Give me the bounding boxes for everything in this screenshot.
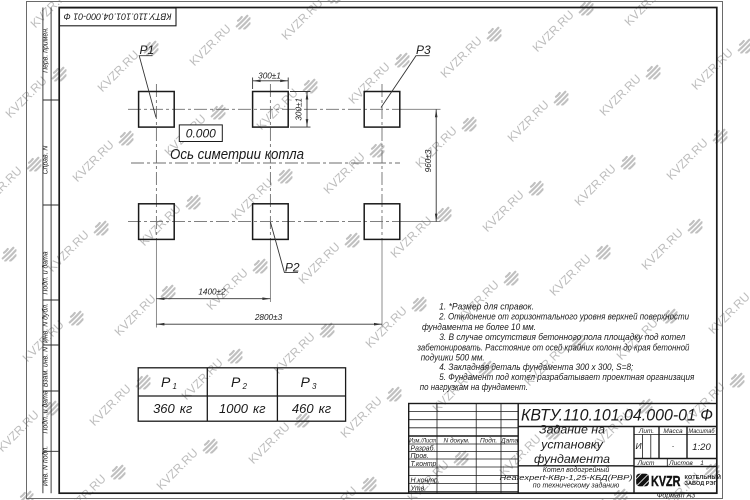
svg-text:1:20: 1:20 — [692, 442, 711, 453]
svg-text:И: И — [635, 441, 642, 451]
svg-text:-: - — [672, 443, 675, 450]
svg-text:фундамента не более 10 мм.: фундамента не более 10 мм. — [422, 322, 536, 332]
svg-text:4. Закладная деталь фундамента: 4. Закладная деталь фундамента 300 x 300… — [439, 362, 633, 372]
svg-text:360кг: 360кг — [153, 401, 193, 416]
svg-text:KVZR.RU: KVZR.RU — [0, 164, 25, 211]
svg-text:1000кг: 1000кг — [219, 401, 266, 416]
svg-text:Инв. N дубл.: Инв. N дубл. — [41, 303, 49, 343]
svg-text:Формат А3: Формат А3 — [657, 493, 695, 500]
svg-text:Масса: Масса — [663, 428, 683, 435]
svg-text:KVZR.RU: KVZR.RU — [706, 290, 750, 337]
svg-text:KVZR.RU: KVZR.RU — [95, 48, 142, 95]
svg-text:Ось симетрии котла: Ось симетрии котла — [170, 147, 304, 163]
svg-text:300±1: 300±1 — [295, 98, 304, 121]
svg-text:установку: установку — [540, 438, 603, 452]
svg-text:фундамента: фундамента — [534, 452, 610, 466]
svg-text:P2: P2 — [285, 261, 300, 275]
svg-text:KVZR.RU: KVZR.RU — [137, 202, 184, 249]
svg-text:KVZR.RU: KVZR.RU — [45, 228, 92, 275]
svg-text:Инв. N подл.: Инв. N подл. — [41, 446, 49, 486]
svg-text:N докум.: N докум. — [443, 437, 469, 445]
svg-text:KVZR.RU: KVZR.RU — [296, 240, 343, 287]
svg-text:KVZR.RU: KVZR.RU — [87, 382, 134, 429]
svg-text:Листов: Листов — [668, 460, 693, 467]
svg-text:Подп.: Подп. — [480, 437, 497, 445]
svg-text:KVZR.RU: KVZR.RU — [62, 472, 109, 500]
svg-text:KVZR: KVZR — [651, 474, 681, 490]
svg-text:1: 1 — [700, 460, 704, 467]
svg-text:KVZR.RU: KVZR.RU — [346, 60, 393, 107]
svg-text:KVZR.RU: KVZR.RU — [388, 214, 435, 261]
svg-text:KVZR.RU: KVZR.RU — [0, 408, 42, 455]
svg-text:KVZR.RU: KVZR.RU — [505, 98, 552, 145]
svg-text:P 1: P 1 — [161, 374, 177, 391]
svg-text:по техническому заданию: по техническому заданию — [533, 482, 620, 490]
svg-text:1400±2: 1400±2 — [198, 288, 226, 297]
svg-text:Котел водогрейный: Котел водогрейный — [543, 466, 610, 474]
svg-text:Лит.: Лит. — [638, 428, 654, 435]
svg-text:P 2: P 2 — [231, 374, 248, 391]
svg-text:5. Фундамент под котел разраба: 5. Фундамент под котел разрабатывает про… — [439, 372, 694, 382]
svg-text:KVZR.RU: KVZR.RU — [530, 8, 577, 55]
svg-text:Взам. инв. N: Взам. инв. N — [42, 347, 49, 387]
svg-text:Пров.: Пров. — [411, 453, 429, 460]
svg-text:2800±3: 2800±3 — [254, 313, 283, 322]
svg-text:1. *Размер для справок.: 1. *Размер для справок. — [439, 302, 534, 312]
svg-text:Задание на: Задание на — [539, 423, 605, 437]
svg-text:Утв.: Утв. — [410, 485, 427, 492]
svg-text:Т.контр.: Т.контр. — [411, 461, 439, 468]
svg-text:KVZR.RU: KVZR.RU — [438, 34, 485, 81]
svg-text:KVZR.RU: KVZR.RU — [70, 138, 117, 185]
svg-text:KVZR.RU: KVZR.RU — [564, 496, 611, 500]
svg-text:Лист: Лист — [637, 460, 655, 467]
svg-text:по нагрузкам на фундамент.: по нагрузкам на фундамент. — [420, 382, 528, 392]
svg-text:Подп. и дата: Подп. и дата — [41, 251, 49, 294]
svg-text:P3: P3 — [416, 43, 431, 57]
svg-text:KVZR.RU: KVZR.RU — [187, 22, 234, 69]
svg-text:3. В случае отсутствия бетонно: 3. В случае отсутствия бетонного пола пл… — [439, 332, 685, 342]
svg-text:KVZR.RU: KVZR.RU — [480, 188, 527, 235]
svg-text:2. Отклонение от горизонтально: 2. Отклонение от горизонтального уровня … — [438, 312, 689, 322]
svg-text:KVZR.RU: KVZR.RU — [363, 304, 410, 351]
svg-text:KVZR.RU: KVZR.RU — [321, 150, 368, 197]
svg-text:KVZR.RU: KVZR.RU — [313, 484, 360, 500]
svg-text:KVZR.RU: KVZR.RU — [279, 0, 326, 43]
svg-text:300±1: 300±1 — [258, 72, 281, 81]
svg-text:Н.контр.: Н.контр. — [411, 477, 440, 484]
svg-text:Изм./Лист: Изм./Лист — [409, 438, 436, 445]
svg-text:KVZR.RU: KVZR.RU — [154, 446, 201, 493]
svg-text:960±3: 960±3 — [424, 149, 433, 172]
svg-text:Heatexpert-КВр-1,25-КБД(РВР): Heatexpert-КВр-1,25-КБД(РВР) — [500, 475, 633, 482]
svg-text:забетонировать. Расстояние от: забетонировать. Расстояние от осей крайн… — [417, 342, 690, 352]
svg-text:Масштаб: Масштаб — [689, 427, 715, 435]
svg-text:P 3: P 3 — [300, 374, 317, 391]
svg-text:460кг: 460кг — [292, 401, 332, 416]
svg-text:KVZR.RU: KVZR.RU — [112, 292, 159, 339]
svg-text:подушки 500 мм.: подушки 500 мм. — [421, 353, 485, 363]
svg-text:KVZR.RU: KVZR.RU — [664, 136, 711, 183]
svg-text:KVZR.RU: KVZR.RU — [597, 72, 644, 119]
svg-text:0.000: 0.000 — [186, 127, 216, 141]
svg-text:KVZR.RU: KVZR.RU — [689, 46, 736, 93]
svg-text:КОТЕЛЬНЫЙ: КОТЕЛЬНЫЙ — [685, 473, 721, 481]
svg-text:KVZR.RU: KVZR.RU — [246, 420, 293, 467]
svg-text:KVZR.RU: KVZR.RU — [547, 252, 594, 299]
svg-text:KVZR.RU: KVZR.RU — [338, 394, 385, 441]
svg-text:P1: P1 — [139, 43, 154, 57]
svg-text:Дата: Дата — [500, 438, 519, 445]
svg-text:Перв. примен.: Перв. примен. — [42, 27, 49, 73]
svg-text:KVZR.RU: KVZR.RU — [639, 226, 686, 273]
svg-text:Подп. и дата: Подп. и дата — [41, 390, 49, 433]
svg-text:KVZR.RU: KVZR.RU — [622, 0, 669, 29]
svg-text:Разраб.: Разраб. — [411, 444, 436, 452]
svg-text:KVZR.RU: KVZR.RU — [572, 162, 619, 209]
svg-text:ЗАВОД РЭП: ЗАВОД РЭП — [685, 481, 718, 487]
svg-text:Справ. N: Справ. N — [42, 146, 49, 175]
svg-text:КВТУ.110.101.04.000-01 Ф: КВТУ.110.101.04.000-01 Ф — [64, 12, 172, 22]
